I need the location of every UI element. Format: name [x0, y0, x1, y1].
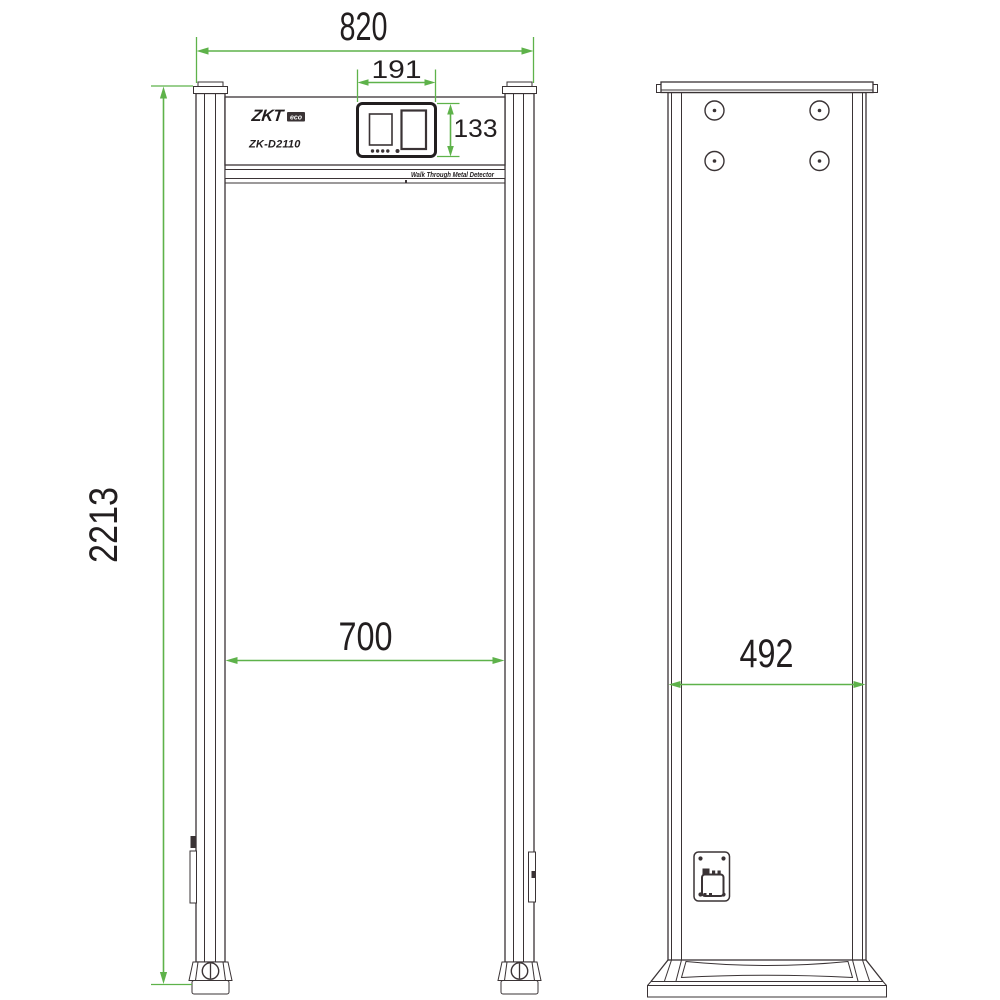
cap-bar [661, 82, 873, 93]
mark-dot [405, 180, 407, 183]
arrowhead-right [493, 657, 505, 664]
dimension-tunnel-width: 700 [226, 615, 505, 664]
right-side-connector [532, 871, 536, 878]
cap-end-tab [873, 85, 878, 93]
panel-button [371, 149, 374, 152]
left-side-connector [191, 836, 197, 848]
dim-492-label: 492 [740, 632, 794, 676]
left-foot-base-plate [192, 981, 229, 995]
power-box-detail [704, 893, 707, 896]
dimension-control-panel-width: 191 [358, 56, 436, 102]
metal-detector-dimension-drawing: ZKT eco ZK-D2110 Walk Through Metal Dete… [0, 0, 1000, 1000]
arrowhead-right [425, 79, 436, 86]
control-panel-left-display [370, 114, 393, 145]
arrowhead-right [522, 47, 534, 54]
dim-133-label: 133 [454, 115, 498, 143]
left-column-body [196, 94, 225, 963]
right-column-body [505, 94, 534, 963]
cap-end-tab [657, 85, 662, 93]
front-left-column [190, 82, 228, 962]
arrowhead-left [226, 657, 238, 664]
front-left-foot [189, 962, 232, 994]
model-text: ZK-D2110 [248, 139, 301, 151]
dimension-overall-height: 2213 [82, 86, 193, 985]
screw-center [713, 109, 717, 113]
dim-191-label: 191 [372, 56, 422, 84]
front-view: ZKT eco ZK-D2110 Walk Through Metal Dete… [189, 82, 541, 994]
brand-logo: ZKT [250, 106, 286, 125]
screw-center [818, 109, 822, 113]
dim-700-label: 700 [339, 615, 393, 659]
right-column-cap [503, 87, 537, 94]
product-label-text: Walk Through Metal Detector [411, 170, 495, 179]
right-column-cap-lip [507, 82, 532, 87]
left-side-panel [190, 851, 197, 903]
power-box-screw [698, 856, 702, 860]
arrowhead-down [160, 972, 167, 984]
screw-center [818, 159, 822, 163]
brand-text: ZKT [250, 106, 286, 125]
dim-820-label: 820 [340, 5, 388, 49]
arrowhead-left [358, 79, 369, 86]
arrowhead-up [160, 87, 167, 99]
base-recess [682, 962, 853, 978]
arrowhead-left [197, 47, 209, 54]
power-box-detail [709, 893, 712, 896]
panel-indicator-led [396, 149, 400, 153]
brand-suffix-text: eco [290, 115, 303, 122]
base-plinth [648, 982, 887, 998]
front-right-column [503, 82, 537, 962]
base-corner-line [853, 960, 859, 981]
technical-drawing-page: ZKT eco ZK-D2110 Walk Through Metal Dete… [0, 0, 1000, 1000]
panel-button [386, 149, 389, 152]
power-socket [702, 875, 724, 897]
screw-center [713, 159, 717, 163]
right-foot-base-plate [501, 981, 538, 995]
dim-2213-label: 2213 [82, 487, 126, 563]
side-base-pedestal [648, 960, 887, 997]
side-top-cap [657, 82, 878, 93]
power-interface-box [694, 852, 730, 901]
panel-button [381, 149, 384, 152]
side-view [648, 82, 887, 997]
left-column-cap-lip [198, 82, 223, 87]
control-panel [358, 104, 436, 157]
front-right-foot [498, 962, 541, 994]
panel-button [376, 149, 379, 152]
base-corner-line [676, 960, 682, 981]
power-box-screw [721, 856, 725, 860]
control-panel-right-display [402, 111, 427, 150]
left-column-cap [194, 87, 228, 94]
side-body [668, 93, 866, 961]
dimension-overall-width: 820 [197, 5, 534, 83]
